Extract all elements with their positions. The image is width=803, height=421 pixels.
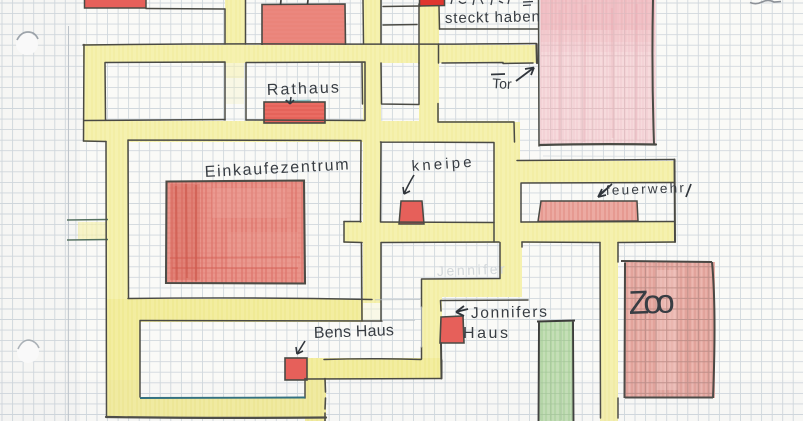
- svg-text:Bens Haus: Bens Haus: [314, 322, 395, 342]
- svg-text:Rathaus: Rathaus: [267, 79, 340, 99]
- svg-text:feuerwehr: feuerwehr: [606, 180, 685, 198]
- svg-text:Haus: Haus: [463, 325, 508, 342]
- svg-text:Jennifer: Jennifer: [437, 261, 506, 279]
- svg-text:Tor: Tor: [492, 75, 513, 92]
- svg-text:steckt haben: steckt haben: [445, 8, 540, 27]
- svg-text:Zoo: Zoo: [628, 282, 675, 321]
- svg-text:Jonnifers: Jonnifers: [471, 304, 548, 322]
